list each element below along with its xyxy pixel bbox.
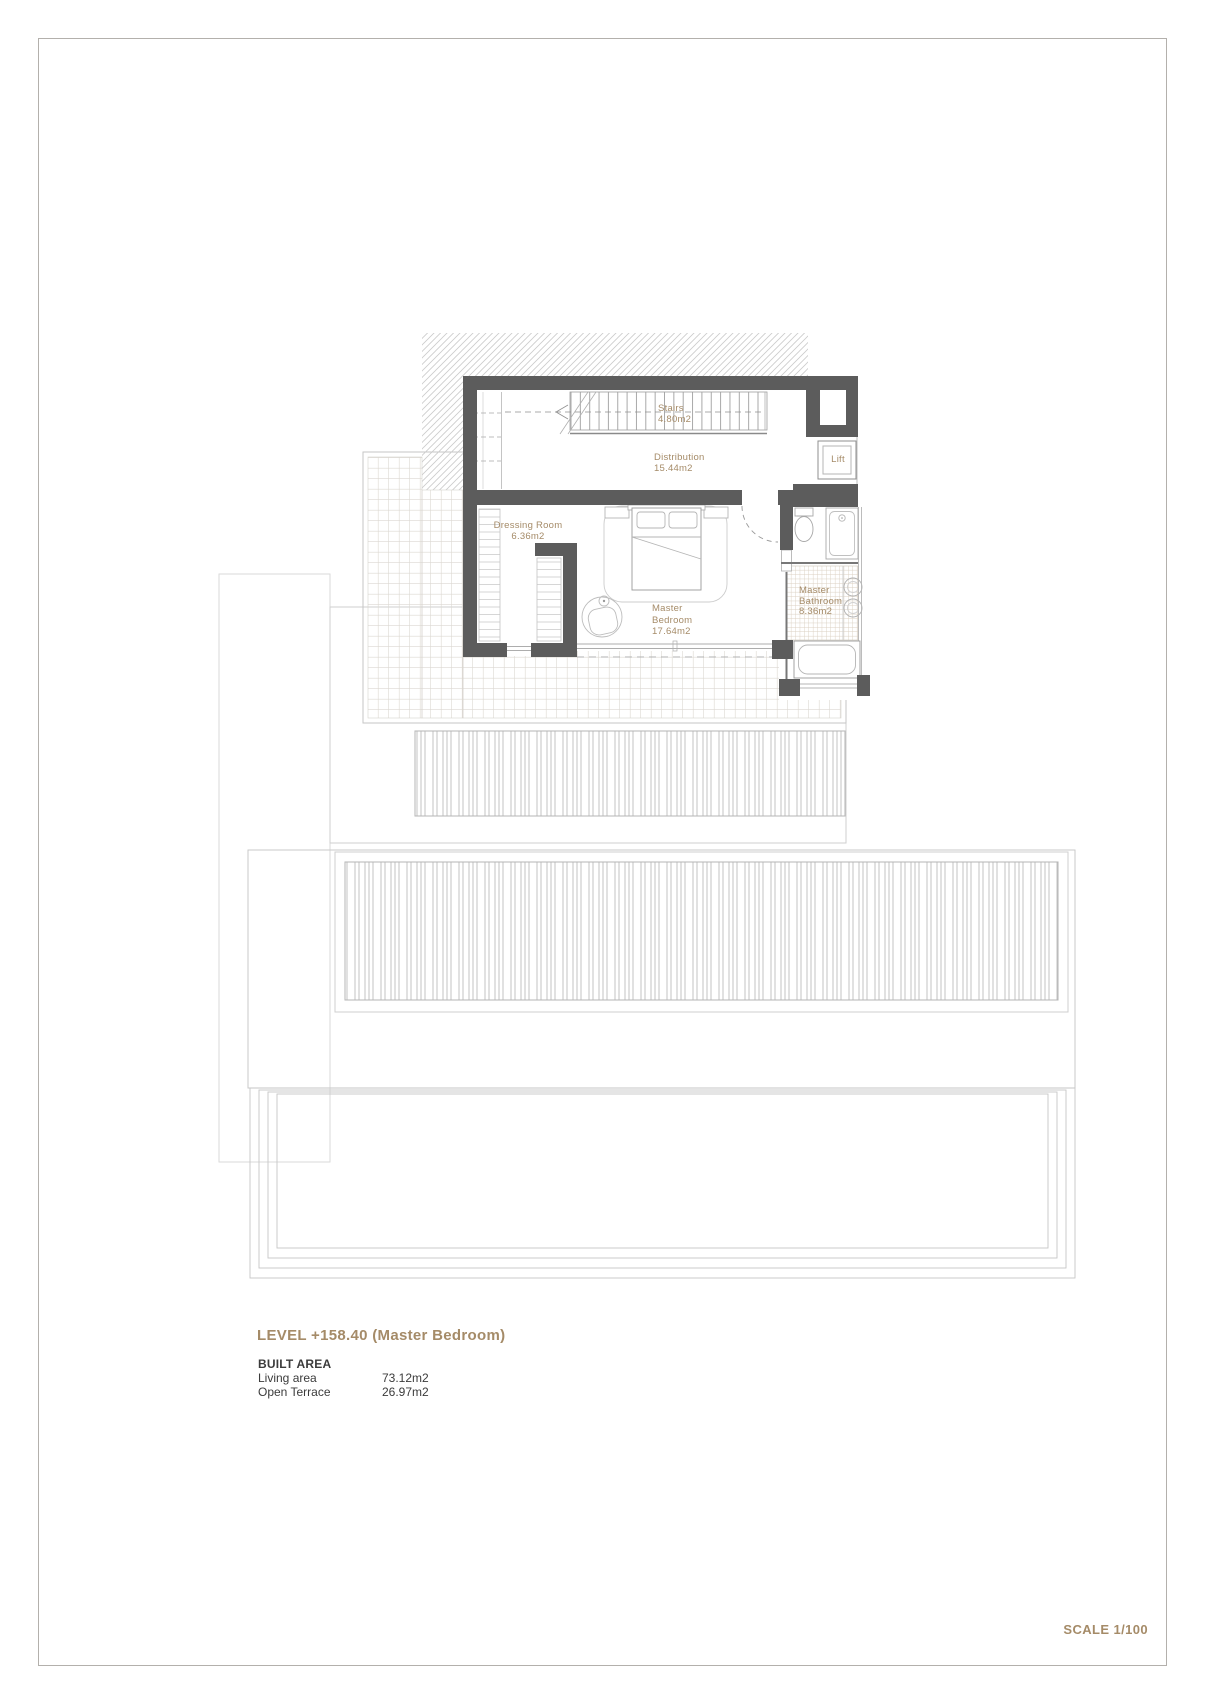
pergola-louvers — [345, 731, 1058, 1000]
level-title: LEVEL +158.40 (Master Bedroom) — [257, 1327, 505, 1344]
room-area: 15.44m2 — [654, 464, 705, 475]
room-label-dressing-room: Dressing Room 6.36m2 — [494, 521, 563, 542]
lower-terrace-steps — [250, 1088, 1075, 1278]
area-row-living: Living area 73.12m2 — [258, 1371, 558, 1385]
built-area-heading: BUILT AREA — [258, 1357, 331, 1371]
room-name: Master — [652, 603, 692, 615]
room-name: Lift — [831, 455, 845, 466]
room-area: 8.36m2 — [799, 607, 842, 618]
floor-plan-drawing — [0, 0, 1205, 1704]
area-label: Open Terrace — [258, 1385, 331, 1399]
room-label-stairs: Stairs 4.80m2 — [658, 404, 691, 425]
bathroom-door — [782, 550, 792, 571]
area-row-terrace: Open Terrace 26.97m2 — [258, 1385, 558, 1399]
room-area: 6.36m2 — [494, 532, 563, 543]
room-label-lift: Lift — [831, 455, 845, 466]
room-label-distribution: Distribution 15.44m2 — [654, 453, 705, 474]
area-value: 73.12m2 — [382, 1371, 429, 1385]
room-area: 4.80m2 — [658, 415, 691, 426]
room-label-master-bedroom: Master Bedroom 17.64m2 — [652, 603, 692, 638]
scale-label: SCALE 1/100 — [1063, 1622, 1148, 1637]
room-label-master-bathroom: Master Bathroom 8.36m2 — [799, 586, 842, 618]
bathtub — [794, 641, 860, 678]
room-name: Stairs — [658, 404, 691, 415]
room-area: 17.64m2 — [652, 626, 692, 638]
drawing-sheet: Stairs 4.80m2 Distribution 15.44m2 Lift … — [0, 0, 1205, 1704]
room-name: Bedroom — [652, 615, 692, 627]
room-name: Master — [799, 586, 842, 597]
room-name: Distribution — [654, 453, 705, 464]
area-label: Living area — [258, 1371, 317, 1385]
room-name: Dressing Room — [494, 521, 563, 532]
area-value: 26.97m2 — [382, 1385, 429, 1399]
